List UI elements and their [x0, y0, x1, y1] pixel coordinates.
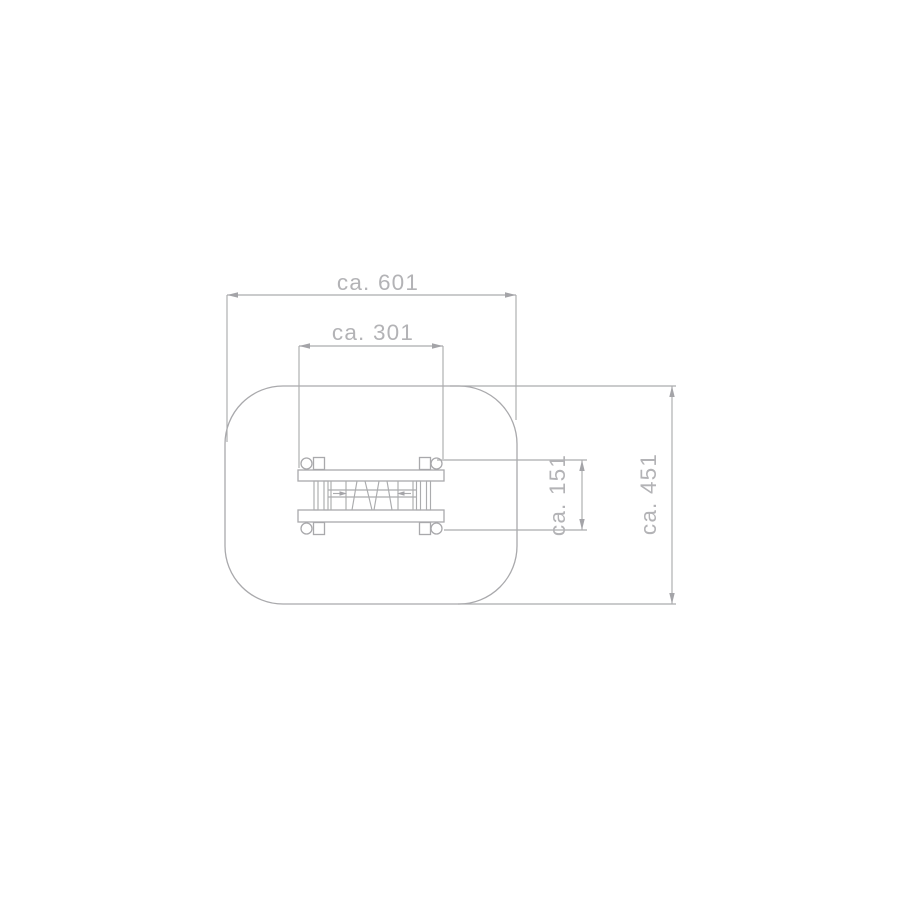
post-circle-bottom-left: [301, 523, 312, 534]
post-anchor-bottom-left: [314, 523, 325, 535]
arrowhead-right-icon: [432, 343, 443, 348]
dimension-label-601: ca. 601: [337, 270, 419, 295]
post-anchor-bottom-right: [420, 523, 431, 535]
truss-diagonal-4: [387, 481, 392, 510]
dimension-safety-zone-width: ca. 601: [227, 270, 516, 442]
plan-view-drawing: ca. 601 ca. 301 ca. 151 ca. 4: [0, 0, 900, 900]
post-anchor-top-right: [420, 458, 431, 470]
post-anchor-top-left: [314, 458, 325, 470]
truss-rail-left-inner: [324, 481, 328, 510]
arrowhead-left-icon: [299, 343, 310, 348]
arrowhead-bottom-icon: [669, 593, 674, 604]
arrowhead-left-icon: [227, 292, 238, 297]
truss-diagonal-2: [365, 481, 372, 510]
frame-beam-top: [298, 470, 444, 481]
technical-drawing-canvas: ca. 601 ca. 301 ca. 151 ca. 4: [0, 0, 900, 900]
dimension-equipment-width: ca. 301: [299, 320, 443, 468]
dimension-equipment-depth: ca. 151: [437, 454, 587, 536]
frame-beam-bottom: [298, 510, 444, 522]
swing-frame-top-view: [298, 458, 444, 535]
truss-rail-right-outer: [427, 481, 431, 510]
arrowhead-top-icon: [579, 460, 584, 471]
truss-rail-left-outer: [314, 481, 318, 510]
truss-rail-right-inner: [417, 481, 421, 510]
post-circle-top-left: [301, 458, 312, 469]
arrowhead-bottom-icon: [579, 519, 584, 530]
post-circle-bottom-right: [431, 523, 442, 534]
dimension-label-151: ca. 151: [545, 454, 570, 536]
safety-zone-outline: [225, 386, 517, 604]
arrowhead-right-icon: [505, 292, 516, 297]
dimension-label-301: ca. 301: [332, 320, 414, 345]
dimension-label-451: ca. 451: [636, 453, 661, 535]
arrowhead-top-icon: [669, 386, 674, 397]
truss-diagonal-1: [352, 481, 357, 510]
truss-diagonal-3: [374, 481, 379, 510]
